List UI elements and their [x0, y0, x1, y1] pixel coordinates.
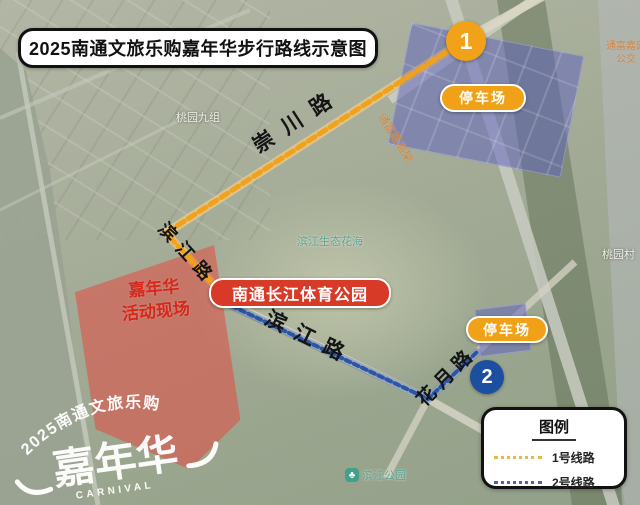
logo-main-text: 嘉年华: [50, 429, 181, 493]
legend-label-route2: 2号线路: [552, 474, 595, 491]
map-label-taoyuan-cun: 桃园村: [602, 246, 635, 262]
map-title: 2025南通文旅乐购嘉年华步行路线示意图: [18, 28, 378, 68]
legend-row-route2: 2号线路: [494, 474, 614, 491]
logo-swash-left: [17, 477, 51, 495]
parking-badge-south: 停车场: [466, 316, 548, 343]
route2-start-marker: 2: [470, 360, 504, 394]
map-label-bus-line1: 通富嘉园: [606, 40, 640, 53]
parking-badge-north: 停车场: [440, 84, 526, 112]
sports-park-badge: 南通长江体育公园: [209, 278, 391, 308]
legend-swatch-route2: [494, 481, 542, 484]
poi-binjiang-label: 滨江公园: [362, 467, 406, 483]
legend-row-route1: 1号线路: [494, 449, 614, 466]
logo-swash-right: [186, 444, 218, 466]
map-label-huahai: 滨江生态花海: [297, 233, 363, 249]
tree-icon: ♣: [345, 468, 359, 482]
legend-title: 图例: [532, 416, 576, 441]
map-canvas: 崇川路 滨江路 滨江路 花月路 通富路高架 桃园九组 桃园村 滨江生态花海 通富…: [0, 0, 640, 505]
legend-swatch-route1: [494, 456, 542, 459]
map-label-taoyuan-jiuzu: 桃园九组: [176, 109, 220, 125]
legend-label-route1: 1号线路: [552, 449, 595, 466]
route1-start-marker: 1: [446, 21, 486, 61]
legend-box: 图例 1号线路 2号线路: [481, 407, 627, 489]
poi-binjiang-park: ♣ 滨江公园: [345, 467, 406, 483]
map-label-bus-line2: 公交: [606, 53, 640, 66]
